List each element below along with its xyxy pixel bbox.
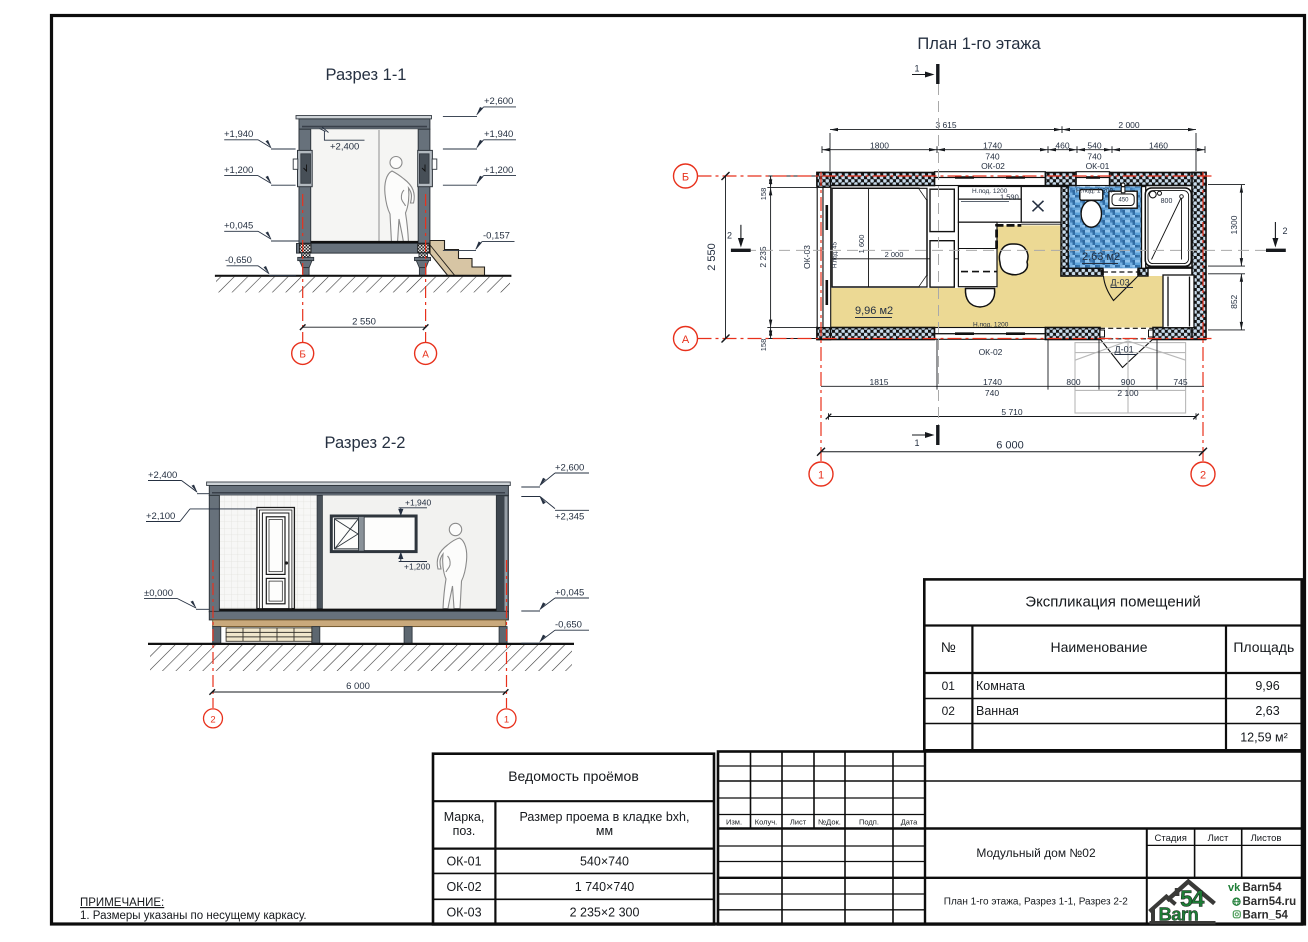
- svg-text:Стадия: Стадия: [1155, 833, 1187, 844]
- svg-text:1 740×740: 1 740×740: [575, 880, 634, 894]
- svg-text:740: 740: [985, 388, 999, 398]
- svg-text:-0,650: -0,650: [555, 620, 582, 631]
- svg-text:740: 740: [985, 152, 999, 162]
- svg-text:460: 460: [1055, 140, 1069, 150]
- svg-text:План 1-го этажа, Разрез 1-1, Р: План 1-го этажа, Разрез 1-1, Разрез 2-2: [944, 897, 1128, 908]
- svg-text:1740: 1740: [983, 140, 1002, 150]
- svg-text:6 000: 6 000: [346, 681, 370, 692]
- svg-text:+1,940: +1,940: [484, 129, 513, 140]
- svg-text:Н.под. 45: Н.под. 45: [833, 241, 839, 268]
- svg-text:Листов: Листов: [1251, 833, 1282, 844]
- svg-text:9,96: 9,96: [1255, 679, 1279, 693]
- svg-text:Комната: Комната: [976, 679, 1025, 693]
- svg-text:А: А: [682, 334, 690, 346]
- svg-text:2: 2: [1200, 470, 1206, 482]
- svg-text:Н.под. 1200: Н.под. 1200: [973, 322, 1009, 329]
- svg-text:Лист: Лист: [790, 818, 807, 827]
- svg-text:1: 1: [818, 470, 824, 482]
- svg-text:800: 800: [1161, 198, 1173, 205]
- svg-text:1: 1: [914, 438, 919, 448]
- svg-text:+1,940: +1,940: [224, 129, 253, 140]
- svg-text:Ванная: Ванная: [976, 704, 1019, 718]
- svg-text:-0,157: -0,157: [483, 231, 510, 242]
- svg-text:Б: Б: [299, 350, 306, 361]
- svg-text:+2,600: +2,600: [484, 96, 513, 107]
- svg-text:2 000: 2 000: [1118, 120, 1140, 130]
- svg-text:900: 900: [1121, 377, 1135, 387]
- svg-text:+2,345: +2,345: [555, 511, 584, 522]
- svg-text:Barn_54: Barn_54: [1243, 910, 1289, 922]
- svg-text:02: 02: [942, 704, 956, 718]
- svg-text:01: 01: [942, 679, 956, 693]
- svg-text:ПРИМЕЧАНИЕ:: ПРИМЕЧАНИЕ:: [80, 897, 164, 909]
- svg-text:Д-01: Д-01: [1115, 345, 1134, 355]
- svg-text:1800: 1800: [870, 140, 889, 150]
- svg-text:Модульный дом №02: Модульный дом №02: [976, 846, 1096, 860]
- svg-text:158: 158: [759, 188, 768, 201]
- svg-text:-0,650: -0,650: [225, 255, 252, 266]
- svg-text:1460: 1460: [1149, 140, 1168, 150]
- svg-text:852: 852: [1229, 294, 1239, 308]
- svg-text:740: 740: [1087, 152, 1101, 162]
- svg-text:800: 800: [1066, 377, 1080, 387]
- svg-text:Н.под. 1 200: Н.под. 1 200: [1076, 188, 1114, 195]
- svg-text:2: 2: [210, 714, 215, 725]
- svg-text:2 550: 2 550: [706, 243, 718, 271]
- svg-text:+0,045: +0,045: [224, 221, 253, 232]
- svg-text:ОК-02: ОК-02: [981, 161, 1005, 171]
- svg-text:+1,940: +1,940: [405, 498, 432, 508]
- svg-text:Разрез 2-2: Разрез 2-2: [324, 434, 405, 452]
- svg-text:1740: 1740: [983, 377, 1002, 387]
- svg-text:540: 540: [1087, 140, 1101, 150]
- svg-text:2: 2: [1283, 226, 1288, 236]
- svg-text:12,59 м²: 12,59 м²: [1240, 731, 1288, 745]
- svg-text:9,96 м2: 9,96 м2: [855, 305, 893, 317]
- svg-text:Д-03: Д-03: [1111, 278, 1130, 288]
- svg-text:Б: Б: [682, 172, 689, 184]
- svg-text:2 000: 2 000: [885, 250, 904, 259]
- svg-text:2 100: 2 100: [1117, 388, 1139, 398]
- svg-text:№: №: [941, 639, 956, 655]
- svg-text:+2,400: +2,400: [148, 470, 177, 481]
- svg-text:5 710: 5 710: [1001, 407, 1023, 417]
- svg-text:450: 450: [1118, 198, 1129, 204]
- svg-text:1300: 1300: [1229, 215, 1239, 234]
- svg-text:158: 158: [759, 339, 768, 352]
- svg-text:Подп.: Подп.: [859, 818, 879, 827]
- svg-text:2 550: 2 550: [352, 316, 376, 327]
- svg-text:1: 1: [914, 64, 919, 74]
- svg-text:Ведомость проёмов: Ведомость проёмов: [508, 768, 639, 784]
- svg-text:Разрез 1-1: Разрез 1-1: [325, 66, 406, 84]
- svg-text:ОК-03: ОК-03: [802, 245, 812, 269]
- svg-text:Экспликация помещений: Экспликация помещений: [1025, 594, 1200, 611]
- svg-text:Лист: Лист: [1208, 833, 1229, 844]
- svg-text:План 1-го этажа: План 1-го этажа: [917, 35, 1041, 53]
- svg-text:ОК-01: ОК-01: [446, 855, 481, 869]
- svg-text:Наименование: Наименование: [1050, 639, 1147, 655]
- svg-text:Площадь: Площадь: [1233, 639, 1294, 655]
- svg-text:ОК-01: ОК-01: [1086, 161, 1110, 171]
- svg-text:+1,200: +1,200: [224, 165, 253, 176]
- svg-text:540×740: 540×740: [580, 855, 629, 869]
- svg-text:+1,200: +1,200: [484, 165, 513, 176]
- svg-text:745: 745: [1173, 377, 1187, 387]
- svg-text:Дата: Дата: [901, 818, 918, 827]
- svg-text:2,63 м2: 2,63 м2: [1082, 251, 1120, 263]
- svg-text:ОК-03: ОК-03: [446, 906, 481, 920]
- svg-text:Barn54: Barn54: [1243, 882, 1283, 894]
- svg-text:6 000: 6 000: [996, 440, 1024, 452]
- svg-text:№Док.: №Док.: [818, 818, 841, 827]
- svg-text:+2,600: +2,600: [555, 462, 584, 473]
- svg-text:1 590: 1 590: [1000, 193, 1019, 202]
- svg-text:ОК-02: ОК-02: [446, 880, 481, 894]
- svg-text:1: 1: [504, 714, 509, 725]
- svg-text:+2,400: +2,400: [330, 142, 359, 153]
- svg-text:1815: 1815: [870, 377, 889, 387]
- svg-text:2 235: 2 235: [758, 246, 768, 268]
- svg-text:1. Размеры указаны по несущему: 1. Размеры указаны по несущему каркасу.: [80, 910, 307, 922]
- svg-text:+2,100: +2,100: [146, 511, 175, 522]
- svg-text:2 235×2 300: 2 235×2 300: [570, 906, 640, 920]
- svg-text:мм: мм: [596, 824, 613, 838]
- svg-text:+0,045: +0,045: [555, 587, 584, 598]
- svg-text:Размер проема в кладке bxh,: Размер проема в кладке bxh,: [519, 810, 689, 824]
- svg-text:А: А: [422, 350, 429, 361]
- svg-text:Barn54.ru: Barn54.ru: [1243, 896, 1297, 908]
- svg-text:поз.: поз.: [453, 824, 476, 838]
- svg-text:±0,000: ±0,000: [144, 588, 173, 599]
- svg-text:vk: vk: [1228, 882, 1241, 894]
- svg-text:Марка,: Марка,: [444, 810, 485, 824]
- svg-text:2: 2: [727, 231, 732, 241]
- svg-text:+1,200: +1,200: [404, 562, 431, 572]
- svg-text:Колуч.: Колуч.: [755, 818, 778, 827]
- svg-text:Изм.: Изм.: [726, 818, 742, 827]
- svg-text:2,63: 2,63: [1255, 704, 1279, 718]
- svg-text:ОК-02: ОК-02: [979, 347, 1003, 357]
